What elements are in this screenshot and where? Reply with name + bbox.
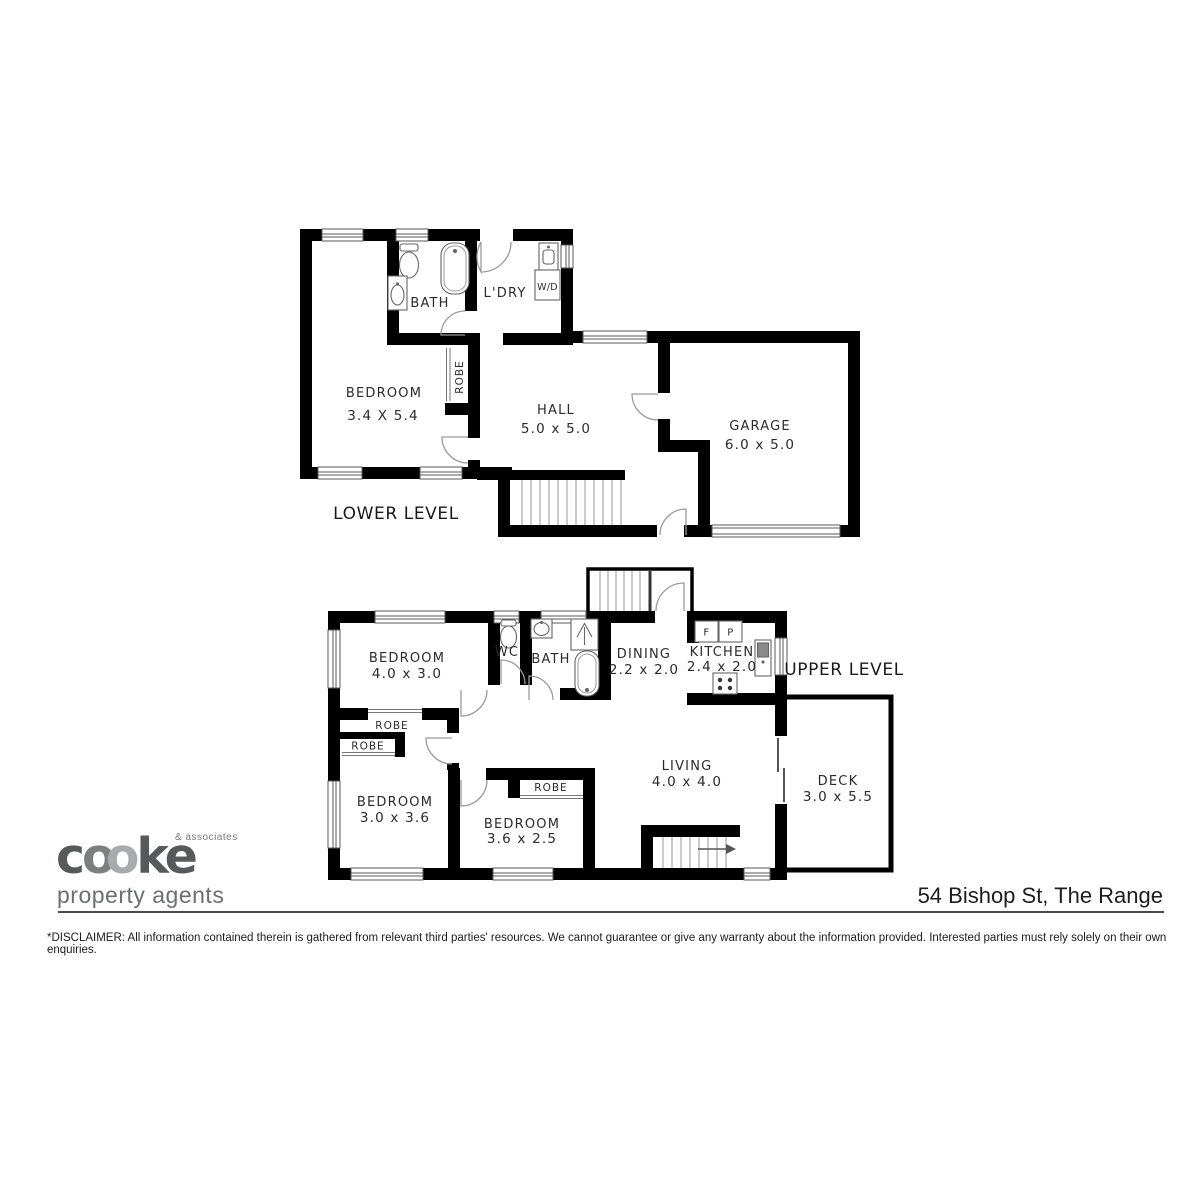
- room-dims-garage: 6.0 x 5.0: [725, 437, 795, 453]
- room-label-dining: DINING: [617, 647, 671, 662]
- room-dims-living: 4.0 x 4.0: [652, 774, 722, 790]
- logo-wordmark: cooke: [56, 832, 195, 881]
- room-label-hall: HALL: [537, 403, 575, 418]
- logo-letter: o: [106, 828, 137, 885]
- logo-letter: k: [136, 828, 164, 885]
- property-address: 54 Bishop St, The Range: [918, 883, 1163, 909]
- room-label-deck: DECK: [818, 774, 859, 789]
- room-dims-lower-bedroom: 3.4 X 5.4: [347, 408, 419, 424]
- lower-level-plan: BEDROOM 3.4 X 5.4 BATH L'DRY W/D ROBE HA…: [300, 229, 860, 537]
- room-label-ldry: L'DRY: [484, 286, 527, 301]
- disclaimer-text: *DISCLAIMER: All information contained t…: [47, 932, 1177, 956]
- cooktop-icon: [713, 673, 737, 694]
- garage-door: [712, 525, 840, 537]
- cooke-logo: & associates cooke property agents: [56, 830, 256, 910]
- room-dims-upper-bedroom2: 3.0 x 3.6: [360, 810, 430, 826]
- room-label-upper-bedroom2: BEDROOM: [357, 795, 433, 810]
- room-dims-upper-bedroom3: 3.6 x 2.5: [487, 831, 557, 847]
- room-dims-kitchen: 2.4 x 2.0: [687, 659, 757, 675]
- room-label-garage: GARAGE: [729, 419, 791, 434]
- room-label-wc: WC: [495, 645, 519, 660]
- room-label-robe3: ROBE: [534, 782, 567, 794]
- wc-toilet-icon: [501, 620, 517, 648]
- upper-down-stairs: [663, 837, 736, 868]
- room-label-kitchen: KITCHEN: [690, 645, 755, 660]
- lower-robe-slider: [447, 348, 451, 401]
- level-label-lower: LOWER LEVEL: [333, 504, 459, 524]
- lower-stairs: [522, 480, 621, 525]
- shower-icon: [571, 619, 598, 650]
- bathtub-icon: [441, 243, 469, 294]
- label-wd: W/D: [537, 282, 558, 293]
- room-label-robe1: ROBE: [375, 720, 408, 732]
- label-fridge: F: [703, 628, 709, 639]
- room-label-upper-bath: BATH: [531, 652, 570, 667]
- room-dims-dining: 2.2 x 2.0: [609, 662, 679, 678]
- logo-letter: c: [56, 828, 82, 885]
- level-label-upper: UPPER LEVEL: [784, 660, 904, 680]
- bath-basin-icon: [531, 619, 552, 638]
- room-label-lower-bedroom: BEDROOM: [346, 386, 422, 401]
- room-label-robe2: ROBE: [351, 741, 384, 753]
- room-dims-hall: 5.0 x 5.0: [521, 421, 591, 437]
- floorplan-drawing: BEDROOM 3.4 X 5.4 BATH L'DRY W/D ROBE HA…: [0, 0, 1200, 1200]
- room-label-upper-bedroom3: BEDROOM: [484, 817, 560, 832]
- room-label-lower-robe: ROBE: [454, 360, 466, 393]
- toilet-icon: [400, 244, 419, 278]
- upper-entry-stairs: [588, 569, 692, 611]
- room-label-upper-bedroom1: BEDROOM: [369, 651, 445, 666]
- room-dims-deck: 3.0 x 5.5: [803, 789, 873, 805]
- room-dims-upper-bedroom1: 4.0 x 3.0: [372, 666, 442, 682]
- upper-level-plan: BEDROOM 4.0 x 3.0 WC BATH DINING 2.2 x 2…: [328, 569, 904, 880]
- floorplan-page: BEDROOM 3.4 X 5.4 BATH L'DRY W/D ROBE HA…: [0, 0, 1200, 1200]
- footer-divider: [58, 911, 1164, 913]
- upper-bathtub-icon: [575, 651, 599, 696]
- kitchen-sink-icon: [755, 640, 771, 676]
- lower-walls: [300, 229, 860, 537]
- basin-icon: [388, 276, 407, 310]
- room-label-lower-bath: BATH: [410, 296, 449, 311]
- room-label-living: LIVING: [662, 759, 713, 774]
- label-pantry: P: [727, 628, 734, 639]
- deck-sliding-door: [778, 738, 784, 802]
- logo-tagline: property agents: [57, 882, 224, 909]
- laundry-tub-icon: [539, 243, 558, 270]
- logo-letter: e: [165, 828, 195, 885]
